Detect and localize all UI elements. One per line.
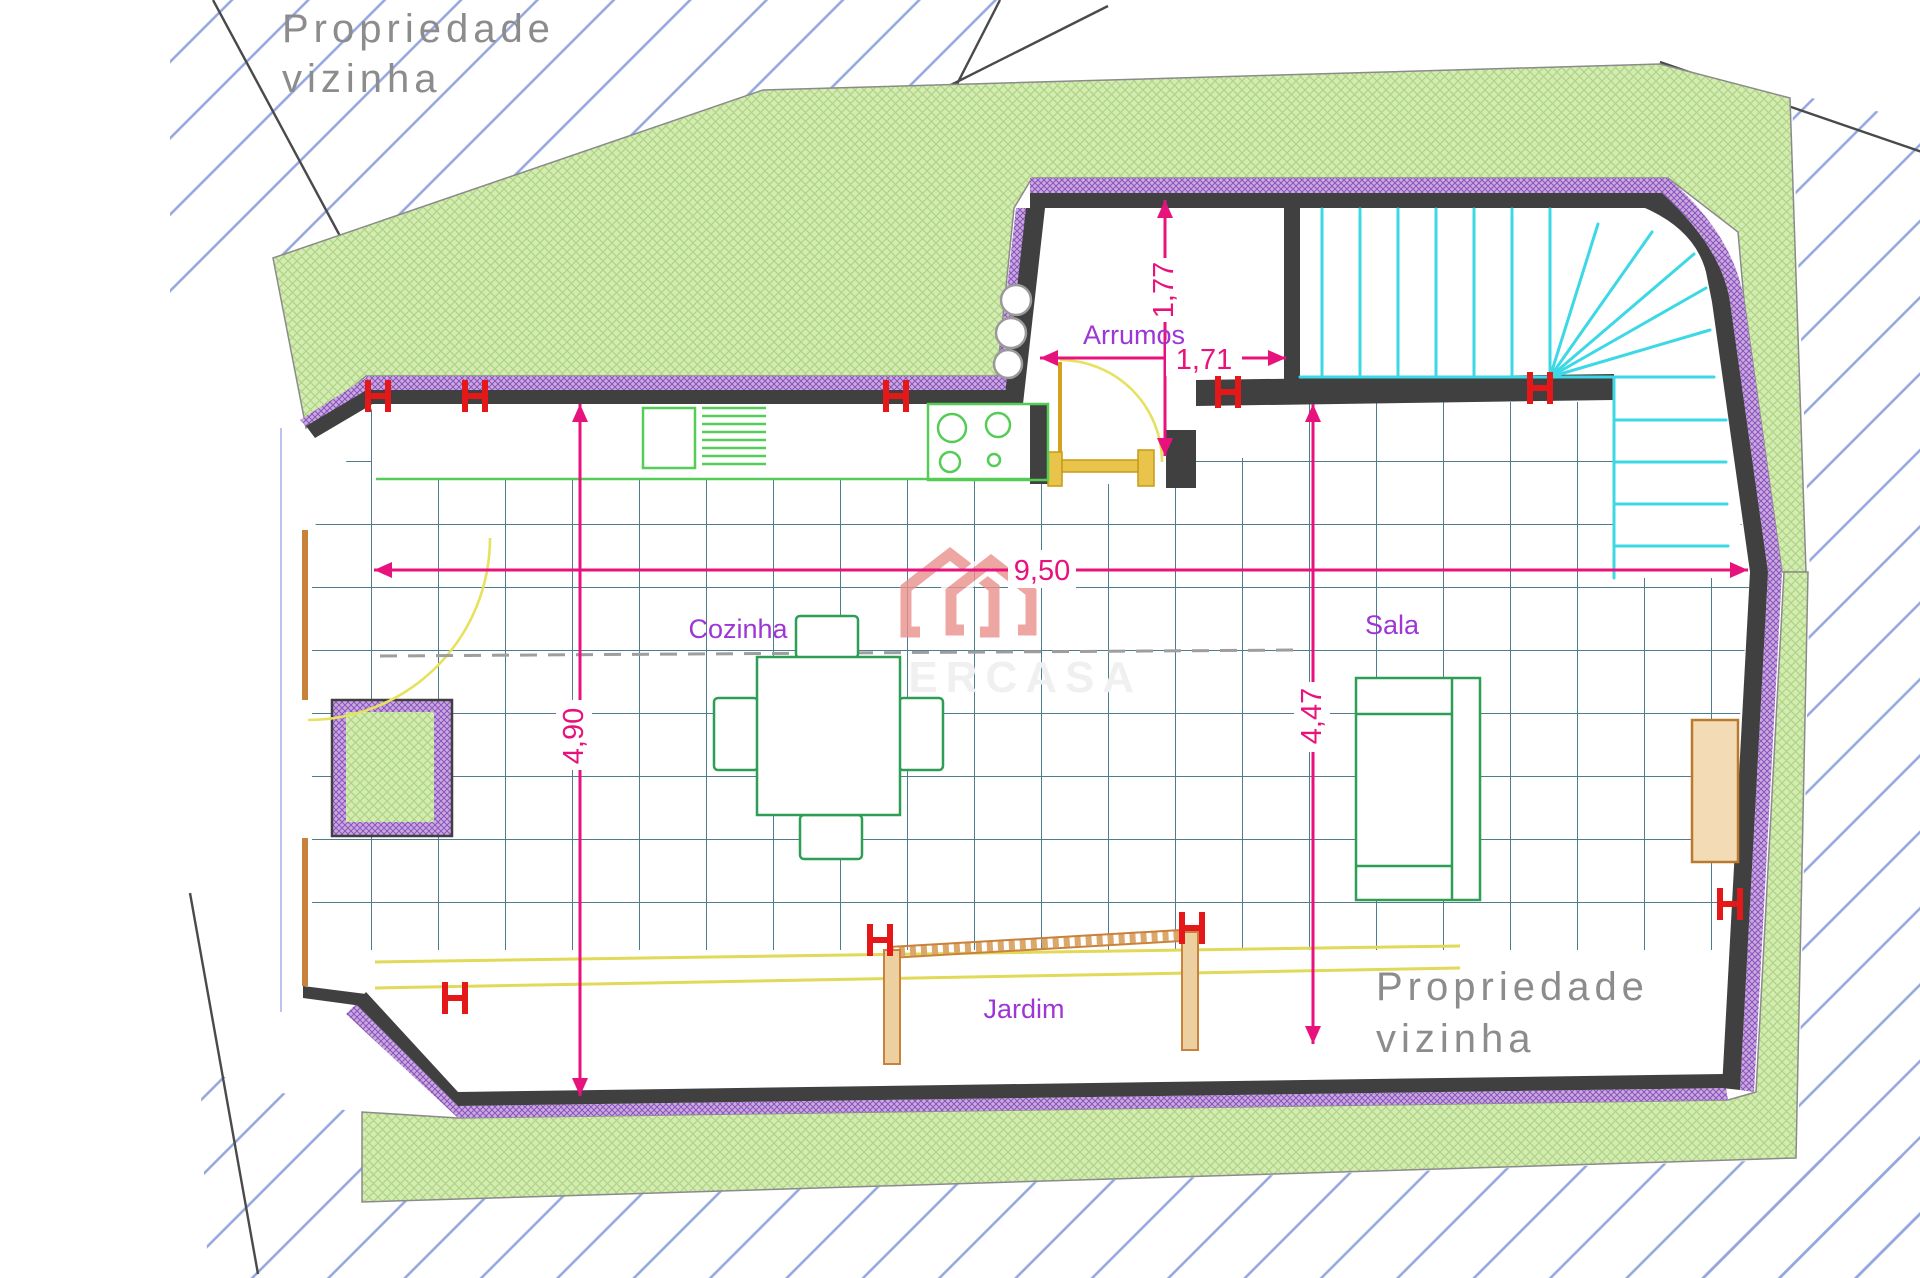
left-pier — [332, 700, 452, 836]
dim-text-living-depth: 4,47 — [1296, 688, 1328, 744]
wall-kitchen-end — [1030, 403, 1048, 484]
wall-storage-right — [1284, 208, 1300, 390]
pergola-post — [884, 950, 900, 1064]
dim-text-storage-depth: 1,77 — [1148, 262, 1180, 318]
chair — [800, 815, 862, 859]
table — [757, 657, 900, 815]
neighbor-label-top-line2: vizinha — [282, 57, 442, 101]
pergola-post — [1182, 932, 1198, 1050]
chair — [899, 698, 943, 770]
room-label-living: Sala — [1365, 610, 1420, 640]
sideboard — [1692, 720, 1738, 862]
room-label-kitchen: Cozinha — [688, 614, 788, 644]
sofa — [1356, 678, 1480, 900]
room-label-storage: Arrumos — [1083, 320, 1185, 350]
room-label-garden: Jardim — [983, 994, 1064, 1024]
chair — [796, 616, 858, 658]
site-plan-svg: SUPERCASA — [0, 0, 1920, 1278]
chair — [714, 698, 758, 770]
dim-text-overall-width: 9,50 — [1014, 555, 1070, 587]
neighbor-label-bottom-line2: vizinha — [1376, 1017, 1536, 1061]
neighbor-label-bottom-line1: Propriedade — [1376, 965, 1649, 1009]
dim-text-kitchen-depth: 4,90 — [558, 708, 590, 764]
floor-plan: SUPERCASA — [0, 0, 1920, 1278]
neighbor-label-top-line1: Propriedade — [282, 7, 555, 51]
